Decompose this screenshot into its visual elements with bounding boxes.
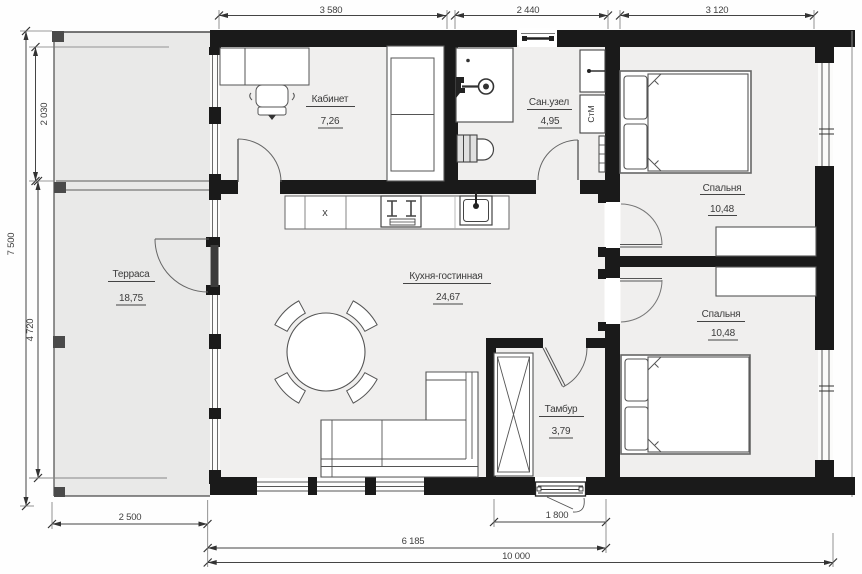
svg-text:2 440: 2 440	[517, 5, 540, 16]
svg-text:3 580: 3 580	[320, 5, 343, 16]
svg-text:2 030: 2 030	[39, 103, 50, 126]
svg-text:2 500: 2 500	[119, 512, 142, 523]
svg-text:Спальня: Спальня	[702, 309, 741, 320]
svg-text:СтМ: СтМ	[586, 105, 596, 122]
svg-text:10 000: 10 000	[502, 551, 530, 562]
svg-text:1 800: 1 800	[546, 510, 569, 521]
svg-text:18,75: 18,75	[119, 293, 144, 304]
svg-text:Тамбур: Тамбур	[545, 403, 578, 415]
svg-text:10,48: 10,48	[711, 328, 736, 339]
svg-text:Кабинет: Кабинет	[312, 93, 349, 105]
svg-text:3,79: 3,79	[552, 426, 571, 437]
svg-text:Кухня-гостинная: Кухня-гостинная	[409, 271, 482, 282]
svg-text:24,67: 24,67	[436, 292, 461, 303]
svg-text:4,95: 4,95	[541, 116, 560, 127]
svg-text:6 185: 6 185	[402, 536, 425, 547]
svg-text:Спальня: Спальня	[703, 183, 742, 194]
svg-text:3 120: 3 120	[706, 5, 729, 16]
svg-text:4 720: 4 720	[25, 319, 36, 342]
svg-text:Терраса: Терраса	[113, 269, 151, 280]
svg-text:Сан.узел: Сан.узел	[529, 97, 569, 108]
svg-text:7 500: 7 500	[6, 233, 17, 256]
svg-text:10,48: 10,48	[710, 204, 735, 215]
svg-text:7,26: 7,26	[321, 116, 340, 127]
svg-text:x: x	[322, 207, 328, 219]
